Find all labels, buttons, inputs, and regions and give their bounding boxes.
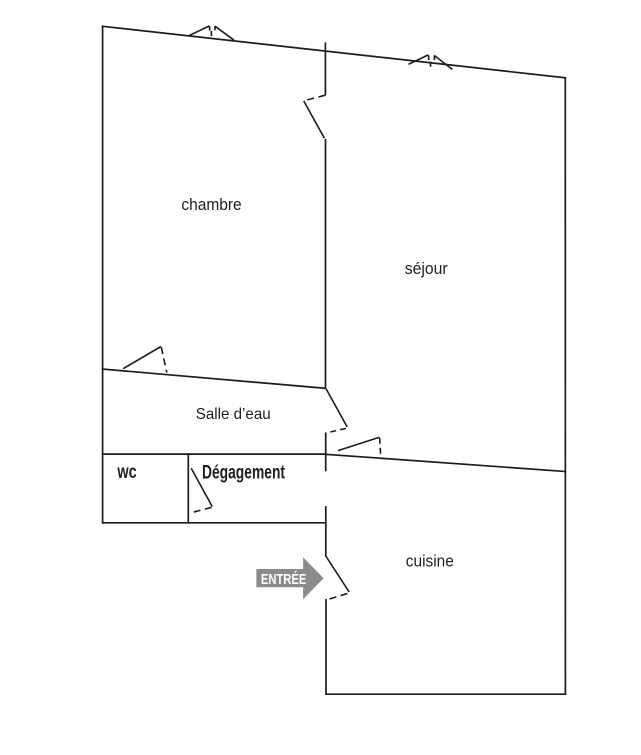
svg-text:chambre: chambre	[181, 196, 241, 214]
svg-text:ENTRÉE: ENTRÉE	[261, 571, 306, 588]
svg-text:wc: wc	[117, 462, 137, 483]
svg-text:cuisine: cuisine	[406, 552, 454, 570]
svg-text:Salle d’eau: Salle d’eau	[196, 406, 271, 423]
svg-text:Dégagement: Dégagement	[202, 462, 286, 483]
svg-text:séjour: séjour	[405, 260, 448, 278]
